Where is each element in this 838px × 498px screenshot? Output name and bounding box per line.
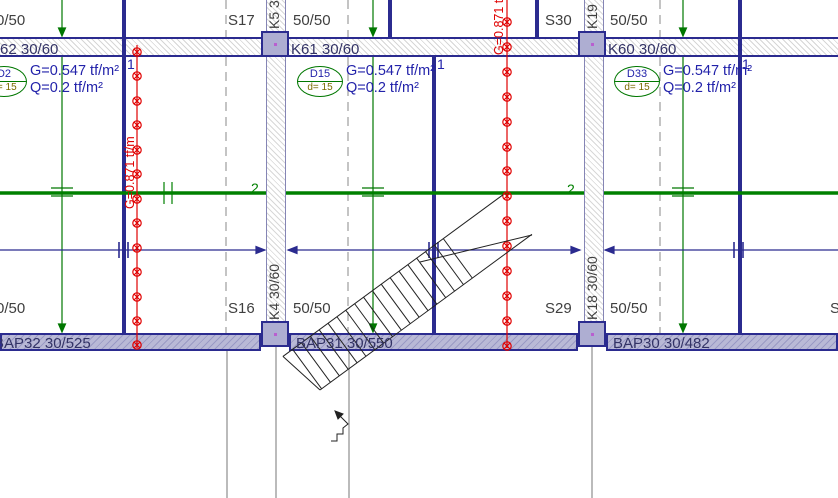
beam-label-k62[interactable]: 62 30/60 — [0, 41, 58, 58]
slab-load-g: G=0.547 tf/m² — [663, 63, 752, 79]
section-label[interactable]: 0/50 — [0, 12, 25, 29]
slab-tag-d33[interactable]: D33 d= 15 — [614, 66, 660, 97]
column-label-s29[interactable]: S29 — [545, 300, 572, 317]
slab-thickness: d= 15 — [298, 82, 342, 94]
beam-label-k5[interactable]: K5 30/60 — [266, 0, 280, 29]
slab-load-g: G=0.547 tf/m² — [30, 63, 119, 79]
beam-label-k4[interactable]: K4 30/60 — [266, 256, 280, 320]
section-label[interactable]: 50/50 — [293, 300, 331, 317]
column-label-s30[interactable]: S30 — [545, 12, 572, 29]
beam-label-bap31[interactable]: BAP31 30/550 — [296, 335, 393, 352]
strip-marker-1: 1 — [437, 56, 445, 72]
slab-load-q: Q=0.2 tf/m² — [30, 80, 103, 96]
slab-id: D33 — [615, 67, 659, 82]
slab-load-g: G=0.547 tf/m² — [346, 63, 435, 79]
beam-label-k61[interactable]: K61 30/60 — [291, 41, 359, 58]
line-load-label-left: G=0.871 tf/m — [123, 94, 136, 209]
strip-marker-2: 2 — [251, 180, 259, 196]
strip-marker-1: 1 — [742, 56, 750, 72]
beam-label-bap30[interactable]: BAP30 30/482 — [613, 335, 710, 352]
axis-lines-below — [227, 347, 592, 498]
strip-marker-2: 2 — [567, 181, 575, 197]
section-label[interactable]: 50/50 — [293, 12, 331, 29]
beam-label-k18[interactable]: K18 30/60 — [584, 248, 598, 320]
stair-direction-arrow — [331, 411, 348, 441]
column-label-s16[interactable]: S16 — [228, 300, 255, 317]
slab-tag-d15[interactable]: D15 d= 15 — [297, 66, 343, 97]
strip-marker-1: 1 — [127, 56, 135, 72]
slab-load-q: Q=0.2 tf/m² — [663, 80, 736, 96]
column-label-s17[interactable]: S17 — [228, 12, 255, 29]
slab-load-q: Q=0.2 tf/m² — [346, 80, 419, 96]
cad-plan-viewport[interactable]: 0/50 S17 K5 30/60 50/50 S30 K19 50/50 62… — [0, 0, 838, 498]
stair-plan[interactable] — [283, 195, 532, 441]
section-label[interactable]: 50/50 — [610, 300, 648, 317]
beam-label-k19[interactable]: K19 — [584, 3, 598, 29]
beam-label-k60[interactable]: K60 30/60 — [608, 41, 676, 58]
section-label[interactable]: 50/50 — [610, 12, 648, 29]
section-label[interactable]: 0/50 — [0, 300, 25, 317]
slab-thickness: d= 15 — [615, 82, 659, 94]
beam-label-bap32[interactable]: BAP32 30/525 — [0, 335, 91, 352]
line-load-label-right: G=0.871 tf/m — [492, 0, 505, 55]
column-label-edge[interactable]: S — [830, 300, 838, 317]
slab-id: D15 — [298, 67, 342, 82]
